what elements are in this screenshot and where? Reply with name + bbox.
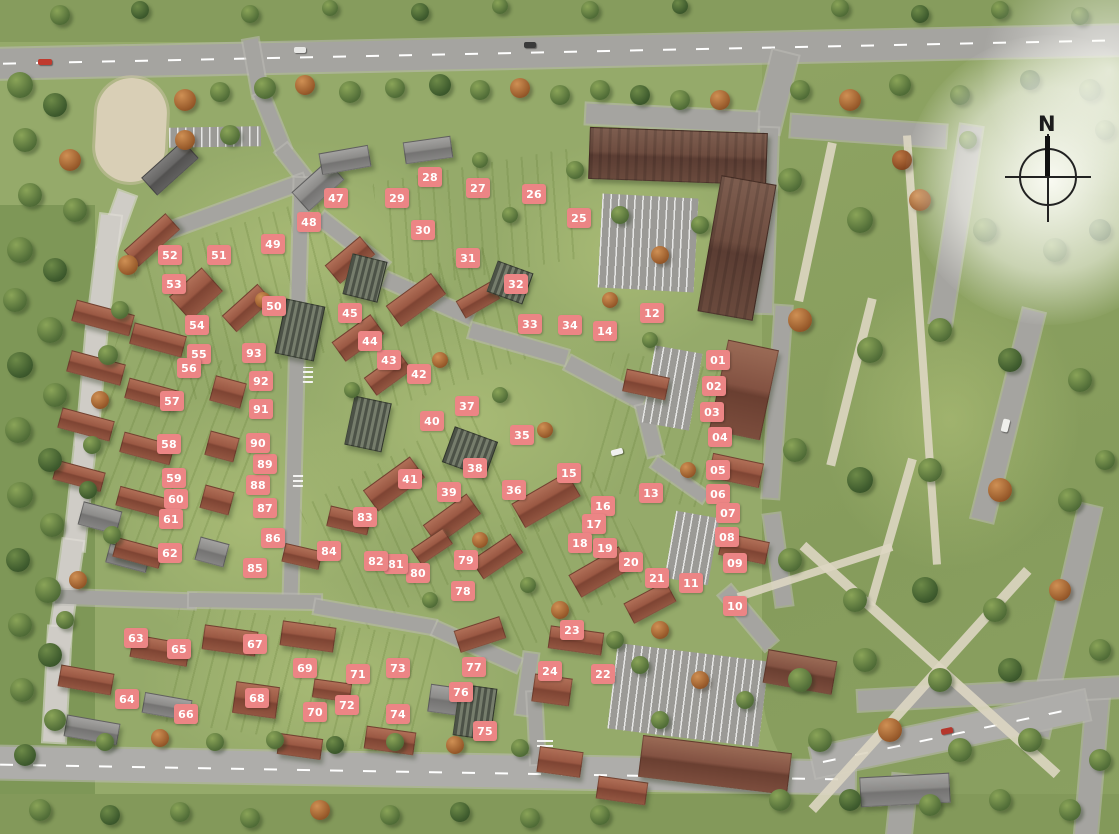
- plot-marker-74[interactable]: 74: [386, 704, 410, 724]
- plot-marker-50[interactable]: 50: [262, 296, 286, 316]
- plot-marker-73[interactable]: 73: [386, 658, 410, 678]
- plot-marker-45[interactable]: 45: [338, 303, 362, 323]
- plot-marker-28[interactable]: 28: [418, 167, 442, 187]
- plot-markers-layer: 0102030405060708091011121314151617181920…: [0, 0, 1119, 834]
- plot-marker-70[interactable]: 70: [303, 702, 327, 722]
- plot-marker-33[interactable]: 33: [518, 314, 542, 334]
- plot-marker-58[interactable]: 58: [157, 434, 181, 454]
- plot-marker-61[interactable]: 61: [159, 509, 183, 529]
- plot-marker-27[interactable]: 27: [466, 178, 490, 198]
- plot-marker-51[interactable]: 51: [207, 245, 231, 265]
- plot-marker-67[interactable]: 67: [243, 634, 267, 654]
- compass-needle-icon: [1045, 136, 1050, 178]
- compass-north-label: N: [1038, 112, 1056, 136]
- plot-marker-76[interactable]: 76: [449, 682, 473, 702]
- plot-marker-54[interactable]: 54: [185, 315, 209, 335]
- plot-marker-87[interactable]: 87: [253, 498, 277, 518]
- plot-marker-12[interactable]: 12: [640, 303, 664, 323]
- plot-marker-57[interactable]: 57: [160, 391, 184, 411]
- plot-marker-84[interactable]: 84: [317, 541, 341, 561]
- plot-marker-15[interactable]: 15: [557, 463, 581, 483]
- plot-marker-90[interactable]: 90: [246, 433, 270, 453]
- plot-marker-89[interactable]: 89: [253, 454, 277, 474]
- plot-marker-29[interactable]: 29: [385, 188, 409, 208]
- plot-marker-18[interactable]: 18: [568, 533, 592, 553]
- plot-marker-80[interactable]: 80: [406, 563, 430, 583]
- plot-marker-65[interactable]: 65: [167, 639, 191, 659]
- plot-marker-86[interactable]: 86: [261, 528, 285, 548]
- plot-marker-68[interactable]: 68: [245, 688, 269, 708]
- plot-marker-20[interactable]: 20: [619, 552, 643, 572]
- plot-marker-34[interactable]: 34: [558, 315, 582, 335]
- plot-marker-71[interactable]: 71: [346, 664, 370, 684]
- plot-marker-11[interactable]: 11: [679, 573, 703, 593]
- plot-marker-72[interactable]: 72: [335, 695, 359, 715]
- plot-marker-93[interactable]: 93: [242, 343, 266, 363]
- plot-marker-01[interactable]: 01: [706, 350, 730, 370]
- plot-marker-35[interactable]: 35: [510, 425, 534, 445]
- plot-marker-47[interactable]: 47: [324, 188, 348, 208]
- plot-marker-09[interactable]: 09: [723, 553, 747, 573]
- compass-crossbar-icon: [1005, 176, 1091, 178]
- plot-marker-42[interactable]: 42: [407, 364, 431, 384]
- plot-marker-53[interactable]: 53: [162, 274, 186, 294]
- plot-marker-56[interactable]: 56: [177, 358, 201, 378]
- plot-marker-82[interactable]: 82: [364, 551, 388, 571]
- plot-marker-16[interactable]: 16: [591, 496, 615, 516]
- plot-marker-37[interactable]: 37: [455, 396, 479, 416]
- plot-marker-32[interactable]: 32: [504, 274, 528, 294]
- plot-marker-49[interactable]: 49: [261, 234, 285, 254]
- plot-marker-92[interactable]: 92: [249, 371, 273, 391]
- plot-marker-85[interactable]: 85: [243, 558, 267, 578]
- plot-marker-69[interactable]: 69: [293, 658, 317, 678]
- plot-marker-59[interactable]: 59: [162, 468, 186, 488]
- plot-marker-10[interactable]: 10: [723, 596, 747, 616]
- plot-marker-52[interactable]: 52: [158, 245, 182, 265]
- plot-marker-04[interactable]: 04: [708, 427, 732, 447]
- plot-marker-66[interactable]: 66: [174, 704, 198, 724]
- plot-marker-24[interactable]: 24: [538, 661, 562, 681]
- plot-marker-44[interactable]: 44: [358, 331, 382, 351]
- plot-marker-88[interactable]: 88: [246, 475, 270, 495]
- plot-marker-06[interactable]: 06: [706, 484, 730, 504]
- plot-marker-31[interactable]: 31: [456, 248, 480, 268]
- plot-marker-48[interactable]: 48: [297, 212, 321, 232]
- plot-marker-14[interactable]: 14: [593, 321, 617, 341]
- plot-marker-38[interactable]: 38: [463, 458, 487, 478]
- plot-marker-40[interactable]: 40: [420, 411, 444, 431]
- plot-marker-25[interactable]: 25: [567, 208, 591, 228]
- plot-marker-64[interactable]: 64: [115, 689, 139, 709]
- plot-marker-78[interactable]: 78: [451, 581, 475, 601]
- plot-marker-26[interactable]: 26: [522, 184, 546, 204]
- plot-marker-17[interactable]: 17: [582, 514, 606, 534]
- plot-marker-60[interactable]: 60: [164, 489, 188, 509]
- plot-marker-43[interactable]: 43: [377, 350, 401, 370]
- plot-marker-05[interactable]: 05: [706, 460, 730, 480]
- plot-marker-63[interactable]: 63: [124, 628, 148, 648]
- plot-marker-03[interactable]: 03: [700, 402, 724, 422]
- plot-marker-07[interactable]: 07: [716, 503, 740, 523]
- site-plan-map: 0102030405060708091011121314151617181920…: [0, 0, 1119, 834]
- plot-marker-62[interactable]: 62: [158, 543, 182, 563]
- plot-marker-13[interactable]: 13: [639, 483, 663, 503]
- plot-marker-02[interactable]: 02: [702, 376, 726, 396]
- plot-marker-41[interactable]: 41: [398, 469, 422, 489]
- plot-marker-08[interactable]: 08: [715, 527, 739, 547]
- plot-marker-19[interactable]: 19: [593, 538, 617, 558]
- plot-marker-83[interactable]: 83: [353, 507, 377, 527]
- plot-marker-21[interactable]: 21: [645, 568, 669, 588]
- plot-marker-39[interactable]: 39: [437, 482, 461, 502]
- plot-marker-23[interactable]: 23: [560, 620, 584, 640]
- plot-marker-77[interactable]: 77: [462, 657, 486, 677]
- plot-marker-91[interactable]: 91: [249, 399, 273, 419]
- plot-marker-75[interactable]: 75: [473, 721, 497, 741]
- plot-marker-79[interactable]: 79: [454, 550, 478, 570]
- plot-marker-36[interactable]: 36: [502, 480, 526, 500]
- plot-marker-22[interactable]: 22: [591, 664, 615, 684]
- plot-marker-30[interactable]: 30: [411, 220, 435, 240]
